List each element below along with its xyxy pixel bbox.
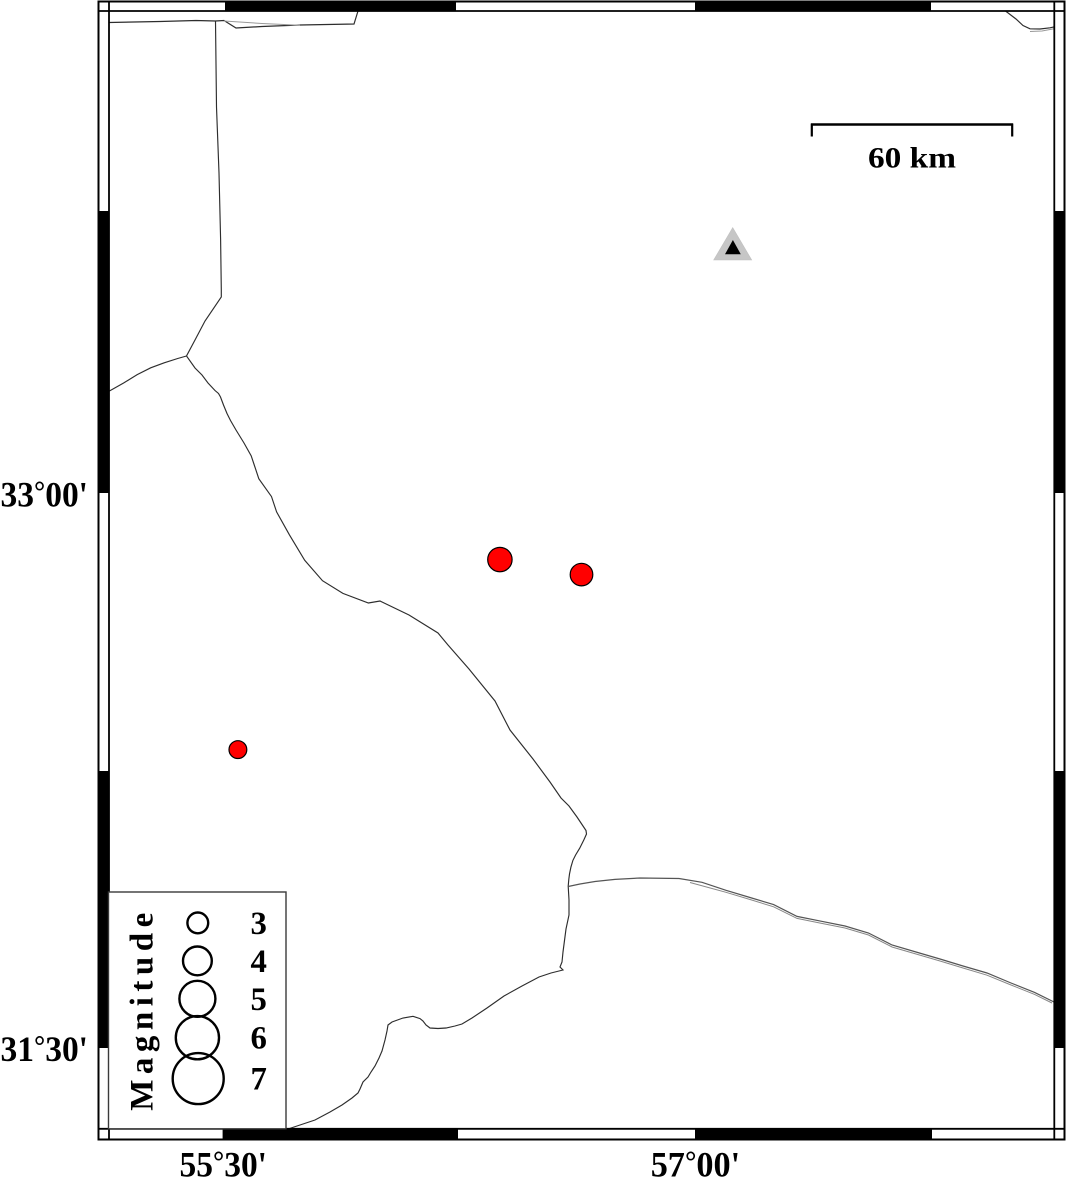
svg-text:5: 5 <box>250 982 266 1018</box>
svg-text:31°30': 31°30' <box>1 1029 89 1069</box>
svg-text:Magnitude: Magnitude <box>125 907 161 1111</box>
svg-text:7: 7 <box>250 1062 266 1098</box>
svg-text:4: 4 <box>250 944 266 980</box>
svg-text:33°00': 33°00' <box>1 475 89 515</box>
svg-text:6: 6 <box>250 1021 266 1057</box>
svg-text:60 km: 60 km <box>868 141 956 175</box>
svg-text:57°00': 57°00' <box>651 1144 741 1178</box>
svg-text:55°30': 55°30' <box>180 1144 268 1178</box>
svg-text:3: 3 <box>250 906 266 942</box>
